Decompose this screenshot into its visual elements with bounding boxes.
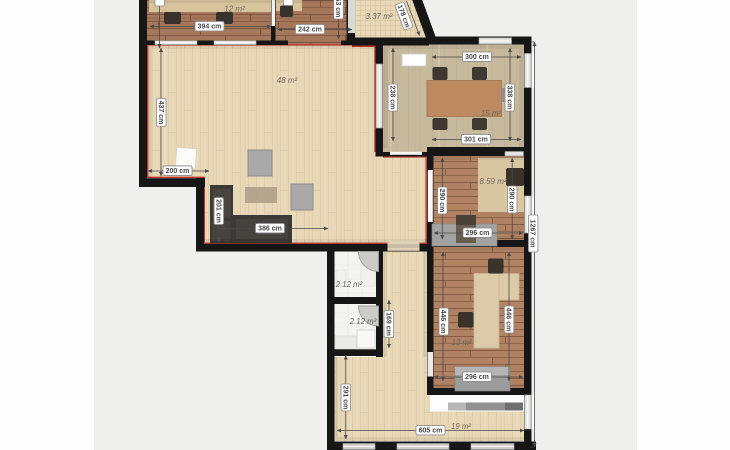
svg-text:201 cm: 201 cm <box>214 199 221 223</box>
svg-text:48 m²: 48 m² <box>277 76 298 85</box>
svg-text:446 cm: 446 cm <box>505 308 512 332</box>
svg-text:8.59 m²: 8.59 m² <box>479 177 506 186</box>
svg-text:3.37 m²: 3.37 m² <box>365 12 392 21</box>
svg-text:446 cm: 446 cm <box>439 310 446 334</box>
svg-text:169 cm: 169 cm <box>384 312 391 336</box>
svg-text:386 cm: 386 cm <box>258 226 282 233</box>
svg-text:2.12 m²: 2.12 m² <box>349 317 377 326</box>
svg-text:242 cm: 242 cm <box>298 27 322 34</box>
svg-text:200 cm: 200 cm <box>166 168 190 175</box>
svg-text:238 cm: 238 cm <box>388 86 395 110</box>
svg-text:2.12 m²: 2.12 m² <box>335 280 363 289</box>
svg-text:301 cm: 301 cm <box>464 137 488 144</box>
svg-text:19 m²: 19 m² <box>451 422 471 431</box>
svg-text:13 m²: 13 m² <box>452 338 472 347</box>
svg-text:605 cm: 605 cm <box>419 428 443 435</box>
svg-text:290 cm: 290 cm <box>438 189 445 213</box>
svg-text:296 cm: 296 cm <box>465 374 489 381</box>
svg-text:263 cm: 263 cm <box>334 0 341 17</box>
svg-text:437 cm: 437 cm <box>157 101 164 125</box>
svg-text:12 m²: 12 m² <box>224 5 245 14</box>
svg-text:1267 cm: 1267 cm <box>529 220 536 248</box>
svg-text:290 cm: 290 cm <box>508 188 515 212</box>
svg-text:296 cm: 296 cm <box>466 230 490 237</box>
svg-text:394 cm: 394 cm <box>198 24 222 31</box>
svg-text:15 m²: 15 m² <box>481 109 502 118</box>
svg-text:300 cm: 300 cm <box>465 54 489 61</box>
svg-text:291 cm: 291 cm <box>341 386 348 410</box>
svg-text:338 cm: 338 cm <box>505 86 512 110</box>
